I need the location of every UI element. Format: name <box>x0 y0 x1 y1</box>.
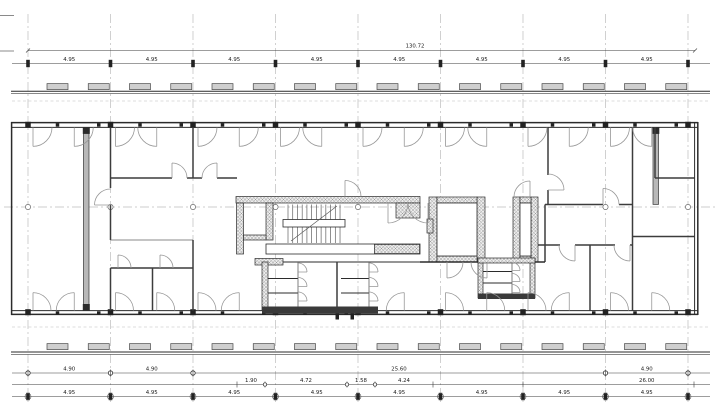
dimension-label: 4.24 <box>398 378 411 384</box>
dimension-label: 4.95 <box>228 57 240 63</box>
exterior-walls <box>11 122 698 315</box>
dimension-label: 4.95 <box>558 390 570 396</box>
interior-partitions <box>111 127 695 310</box>
dimension-label: 4.95 <box>393 57 405 63</box>
dimension-label: 4.72 <box>300 378 312 384</box>
dimension-label: 4.90 <box>641 366 654 372</box>
dimension-label: 4.95 <box>311 390 323 396</box>
dimension-label: 4.95 <box>146 57 158 63</box>
elevator-core <box>420 197 545 262</box>
dimension-label: 4.95 <box>476 57 488 63</box>
floor-plan-drawing: 130.724.954.954.954.954.954.954.954.95 4… <box>0 0 720 405</box>
dimension-label: 4.95 <box>393 390 405 396</box>
dimension-label: 4.95 <box>146 390 158 396</box>
dimension-label: 4.95 <box>641 57 653 63</box>
dimension-label: 1.90 <box>245 378 258 384</box>
dimension-label: 1.58 <box>355 378 368 384</box>
dimension-label: 4.95 <box>476 390 488 396</box>
dimension-label: 26.00 <box>639 378 655 384</box>
dimension-label: 4.95 <box>641 390 653 396</box>
dimension-label: 25.60 <box>391 366 407 372</box>
dimension-label: 4.90 <box>146 366 159 372</box>
dimension-label: 4.95 <box>311 57 323 63</box>
dimension-label: 4.95 <box>63 390 75 396</box>
dimension-label: 4.90 <box>63 366 76 372</box>
dimension-label: 4.95 <box>63 57 75 63</box>
top-dimension-lines: 130.724.954.954.954.954.954.954.954.95 <box>0 16 710 68</box>
dimension-label: 130.72 <box>406 44 425 50</box>
dimension-label: 4.95 <box>228 390 240 396</box>
stair-core <box>236 197 420 255</box>
door-swings <box>33 127 670 310</box>
dimension-label: 4.95 <box>558 57 570 63</box>
floor-plan-sheet: 130.724.954.954.954.954.954.954.954.95 4… <box>0 0 720 405</box>
wc-stalls-left <box>262 262 378 320</box>
